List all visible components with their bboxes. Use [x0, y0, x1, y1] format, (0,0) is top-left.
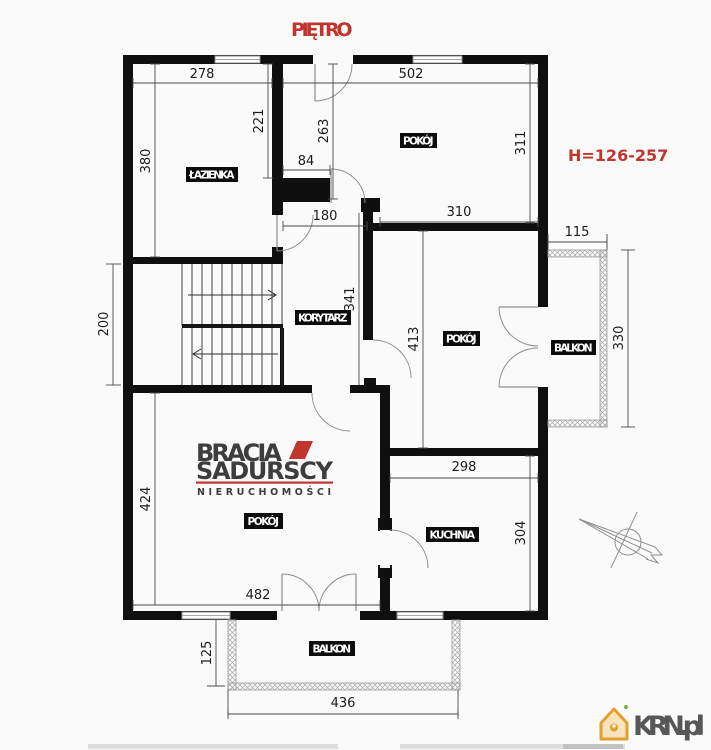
dim-413: 413 — [407, 327, 422, 352]
room-label-room-middle: POKÓJ — [443, 331, 480, 346]
window-icon — [182, 612, 230, 619]
room-label-text: POKÓJ — [403, 135, 434, 148]
room-label-corridor: KORYTARZ — [295, 310, 351, 325]
dim-200: 200 — [97, 312, 112, 337]
room-label-text: POKÓJ — [446, 333, 477, 346]
watermark-line2: SADURSCY — [196, 457, 334, 485]
dim-502: 502 — [399, 67, 424, 82]
room-label-bathroom: ŁAZIENKA — [186, 167, 238, 182]
krn-logo: KRN.pl — [601, 705, 705, 742]
room-label-room-top: POKÓJ — [400, 133, 437, 148]
room-label-text: KUCHNIA — [430, 530, 476, 542]
dim-298: 298 — [452, 460, 477, 475]
dim-311: 311 — [514, 131, 529, 156]
page-title: PIĘTRO — [291, 19, 353, 41]
dim-278: 278 — [190, 67, 215, 82]
room-label-kitchen: KUCHNIA — [426, 527, 479, 542]
floor-plan-drawing: PIĘTRO H=126-257 — [0, 0, 711, 750]
floor-plan-page: PIĘTRO H=126-257 — [0, 0, 711, 750]
dim-84: 84 — [298, 154, 315, 169]
dim-115: 115 — [565, 225, 590, 240]
dim-221: 221 — [252, 109, 267, 134]
dim-125: 125 — [200, 641, 215, 666]
krn-logo-text: KRN.pl — [633, 711, 705, 742]
window-icon — [215, 56, 260, 63]
ceiling-height-note: H=126-257 — [568, 146, 668, 165]
room-label-text: BALKON — [313, 644, 352, 656]
dim-310: 310 — [447, 205, 472, 220]
dim-436: 436 — [331, 696, 356, 711]
room-label-room-bottom: POKÓJ — [244, 513, 283, 529]
room-label-balcony-bottom: BALKON — [309, 641, 355, 656]
room-label-balcony-right: BALKON — [551, 340, 596, 355]
room-label-text: BALKON — [554, 343, 593, 355]
room-label-text: ŁAZIENKA — [188, 170, 235, 182]
room-label-text: POKÓJ — [248, 515, 280, 528]
dim-180: 180 — [313, 209, 338, 224]
dim-482: 482 — [246, 588, 271, 603]
dim-263: 263 — [317, 119, 332, 144]
room-label-text: KORYTARZ — [298, 313, 348, 325]
window-icon — [397, 612, 443, 619]
watermark-line3: NIERUCHOMOŚCI — [197, 486, 331, 498]
window-icon — [413, 56, 462, 63]
dim-330: 330 — [612, 326, 627, 351]
watermark-divider — [196, 482, 333, 484]
dim-304: 304 — [514, 521, 529, 546]
dim-341: 341 — [343, 287, 358, 312]
dim-380: 380 — [139, 149, 154, 174]
dim-424: 424 — [139, 487, 154, 512]
